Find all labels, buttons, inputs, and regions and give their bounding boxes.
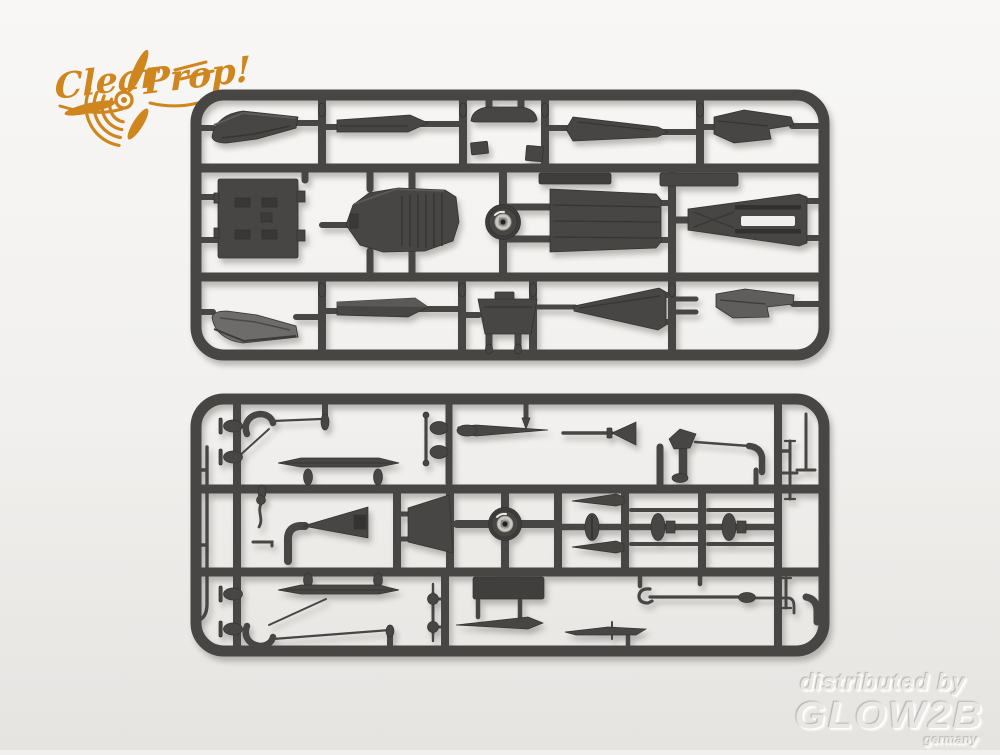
sprue-photo-canvas: Clear Prop! [0, 0, 1000, 750]
part-control-crank [257, 496, 266, 505]
main-wheel-top-sprue [486, 205, 521, 240]
watermark-distributed-by: distributed by [684, 671, 984, 694]
distributor-watermark: distributed by GLOW2B germany [684, 671, 984, 746]
watermark-brand: GLOW2B [666, 697, 984, 735]
part-strake-b [660, 173, 738, 186]
part-canopy-strip [471, 107, 537, 122]
main-wheel-bottom-sprue [489, 508, 522, 541]
part-cockpit-panel [214, 179, 305, 258]
part-fuselage-half [346, 188, 459, 252]
part-strake-a [539, 173, 611, 184]
product-photo: Clear Prop! [0, 0, 1000, 750]
part-rod-collar [739, 593, 756, 603]
part-flat-plate [473, 577, 544, 599]
